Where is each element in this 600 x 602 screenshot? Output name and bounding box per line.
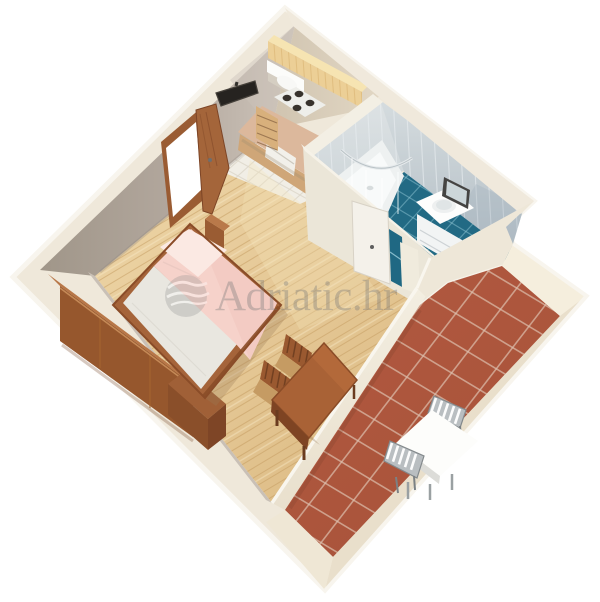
svg-text:Adriatic.hr: Adriatic.hr	[215, 273, 397, 320]
